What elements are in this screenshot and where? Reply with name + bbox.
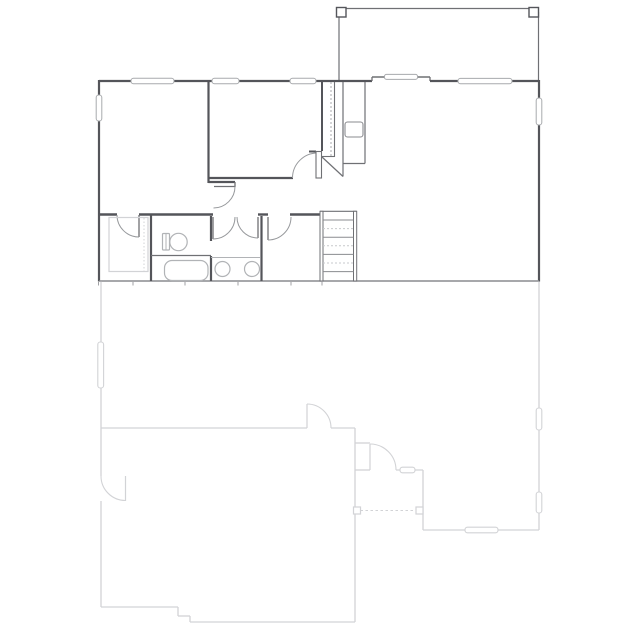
bathtub — [165, 261, 209, 281]
upper-doors — [117, 153, 318, 240]
toilet — [163, 233, 188, 250]
floor-plan-canvas — [0, 0, 639, 639]
outer-walls — [99, 77, 539, 282]
vanity-sinks — [211, 258, 260, 277]
lower-floor-doors — [101, 404, 396, 501]
deck — [337, 8, 540, 82]
level-division-ticks — [99, 282, 323, 286]
walk-in-closet — [109, 218, 148, 272]
fireplace — [309, 82, 365, 178]
floor-plan-page — [0, 0, 639, 639]
lower-floor-windows — [98, 342, 542, 533]
lower-floor-walls — [101, 282, 539, 623]
stairs — [320, 211, 357, 281]
interior-walls — [99, 81, 322, 281]
